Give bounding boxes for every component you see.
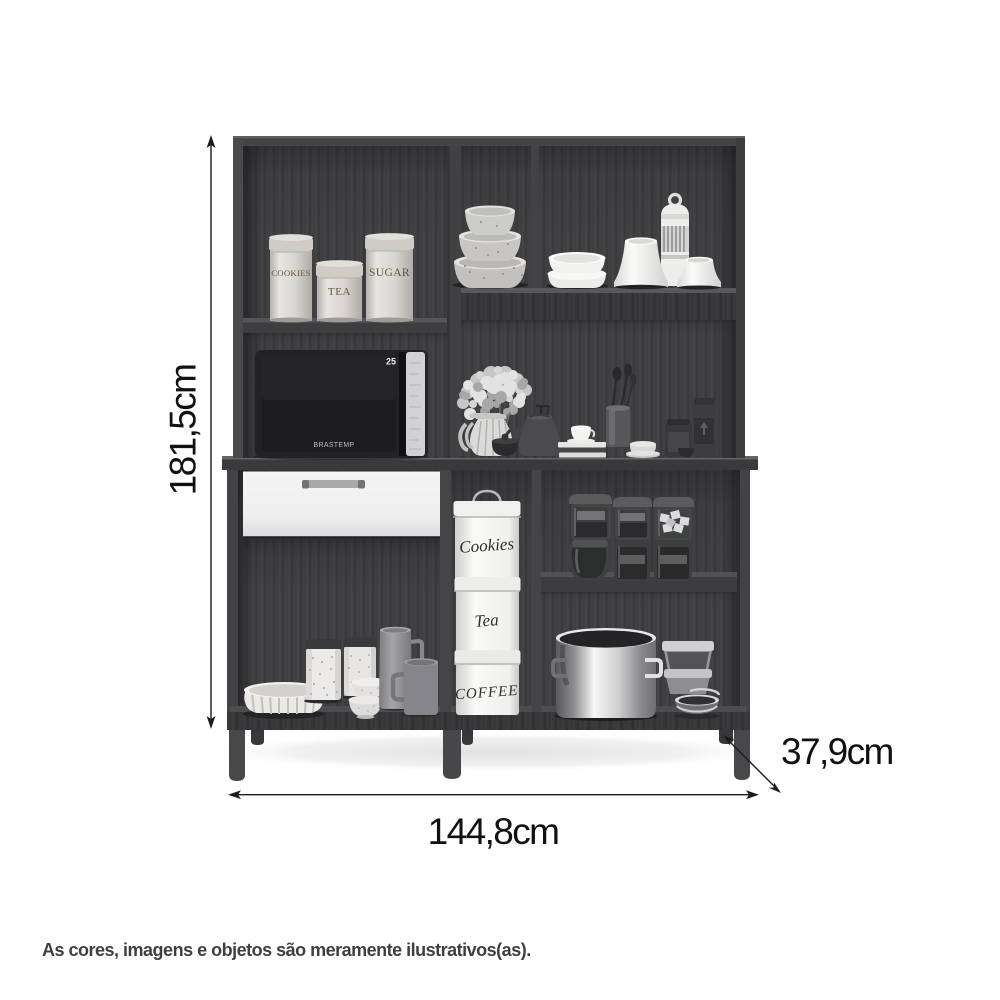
svg-text:25: 25 bbox=[386, 357, 396, 367]
svg-text:TEA: TEA bbox=[328, 286, 351, 298]
svg-text:37,9cm: 37,9cm bbox=[781, 731, 893, 772]
svg-text:Tea: Tea bbox=[474, 610, 499, 631]
svg-text:As cores, imagens e objetos sã: As cores, imagens e objetos são merament… bbox=[42, 940, 531, 960]
svg-text:Cookies: Cookies bbox=[459, 534, 515, 557]
svg-text:SUGAR: SUGAR bbox=[369, 267, 410, 279]
svg-text:BRASTEMP: BRASTEMP bbox=[314, 442, 355, 449]
svg-text:144,8cm: 144,8cm bbox=[428, 811, 559, 852]
svg-text:COOKIES: COOKIES bbox=[271, 268, 311, 278]
svg-text:181,5cm: 181,5cm bbox=[163, 365, 204, 496]
